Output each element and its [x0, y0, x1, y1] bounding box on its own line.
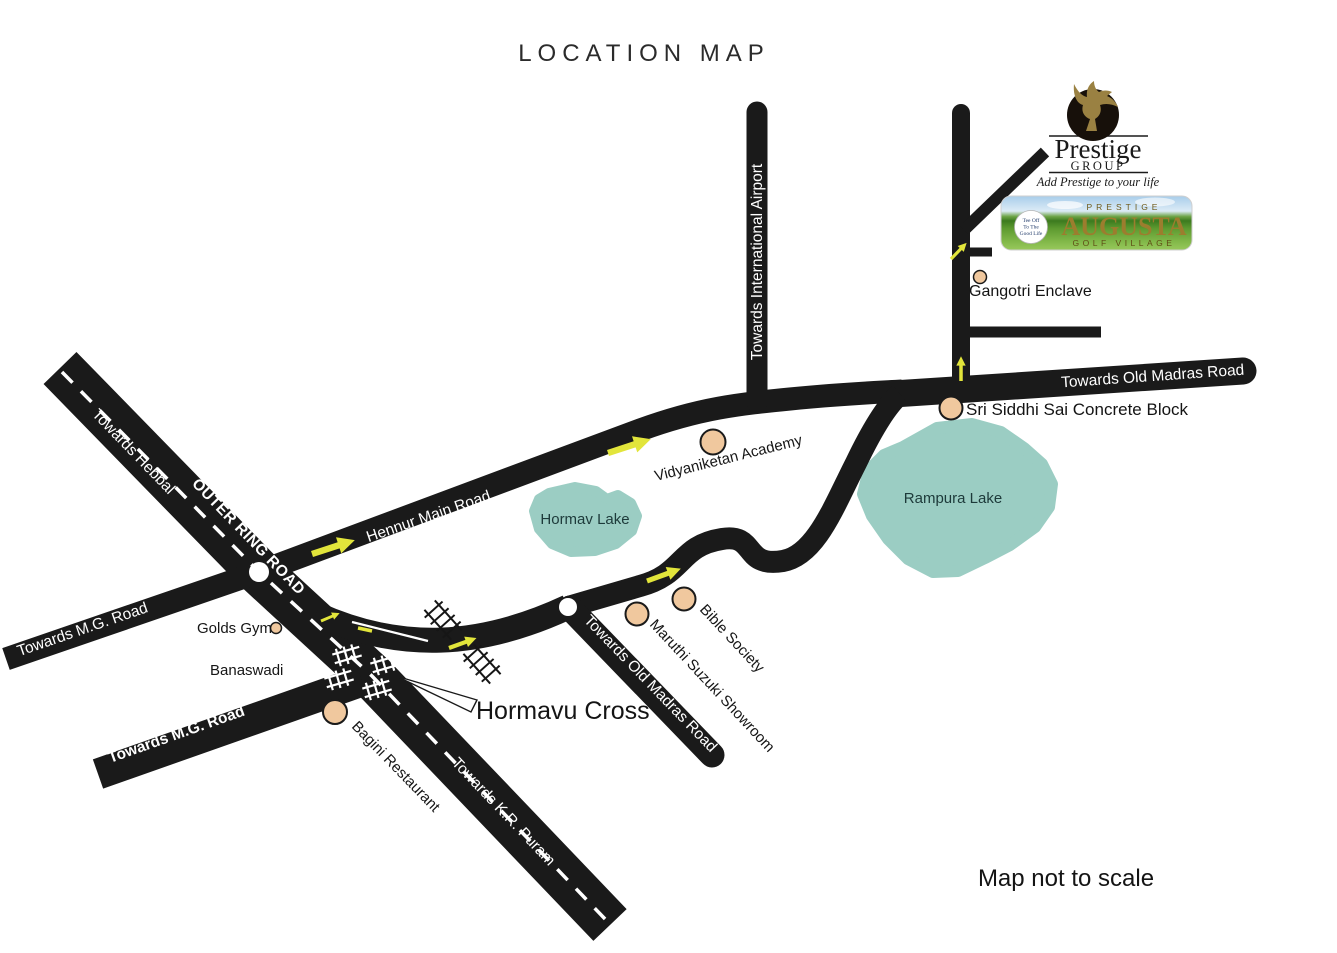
- hormav-lake-label: Hormav Lake: [540, 511, 629, 528]
- landmark-dot-gangotri: [974, 271, 987, 284]
- road-label-airport: Towards International Airport: [749, 163, 766, 360]
- cloud-icon: [1047, 201, 1083, 209]
- golf-ball-text-1: Tee Off: [1023, 217, 1040, 224]
- road-label-mg-upper: Towards M.G. Road: [15, 599, 150, 660]
- map-canvas: LOCATION MAP Map not to scale Towards He…: [0, 0, 1337, 953]
- landmark-label-vidyaniketan: Vidyaniketan Academy: [653, 432, 805, 485]
- prestige-group-text: GROUP: [1071, 159, 1126, 173]
- map-scale-note: Map not to scale: [978, 865, 1154, 892]
- page-title: LOCATION MAP: [518, 40, 770, 67]
- banner-augusta-text: AUGUSTA: [1061, 212, 1186, 241]
- landmark-dot-bagini: [323, 700, 347, 724]
- landmark-dot-maruthi: [626, 603, 649, 626]
- prestige-group-logo: Prestige GROUP Add Prestige to your life: [1036, 81, 1160, 189]
- landmark-label-sri-siddhi: Sri Siddhi Sai Concrete Block: [966, 400, 1189, 419]
- landmark-label-golds-gym: Golds Gym: [197, 620, 272, 637]
- landmark-label-bible: Bible Society: [696, 601, 768, 676]
- landmark-dot-sri-siddhi: [940, 397, 963, 420]
- golf-ball-text-3: Good Life: [1020, 230, 1043, 237]
- landmark-label-gangotri: Gangotri Enclave: [969, 283, 1092, 300]
- landmark-label-hormavu-cross: Hormavu Cross: [476, 697, 650, 725]
- banner-prestige-text: PRESTIGE: [1087, 202, 1162, 212]
- golf-ball-text-2: To The: [1023, 225, 1039, 231]
- banner-golf-village-text: GOLF VILLAGE: [1073, 238, 1176, 248]
- augusta-banner: Tee Off To The Good Life PRESTIGE AUGUST…: [1001, 196, 1192, 250]
- location-map-page: LOCATION MAP Map not to scale Towards He…: [0, 0, 1337, 953]
- road-mg-lower: [98, 681, 362, 774]
- landmark-dot-golds-gym: [271, 623, 282, 634]
- landmark-dot-bible: [673, 588, 696, 611]
- landmark-label-banaswadi: Banaswadi: [210, 662, 283, 679]
- rampura-lake-label: Rampura Lake: [904, 490, 1002, 507]
- prestige-tagline: Add Prestige to your life: [1036, 175, 1160, 189]
- road-label-kr-puram: Towards K.R. Puram: [448, 754, 558, 869]
- junction-dot-hormavu: [559, 598, 577, 616]
